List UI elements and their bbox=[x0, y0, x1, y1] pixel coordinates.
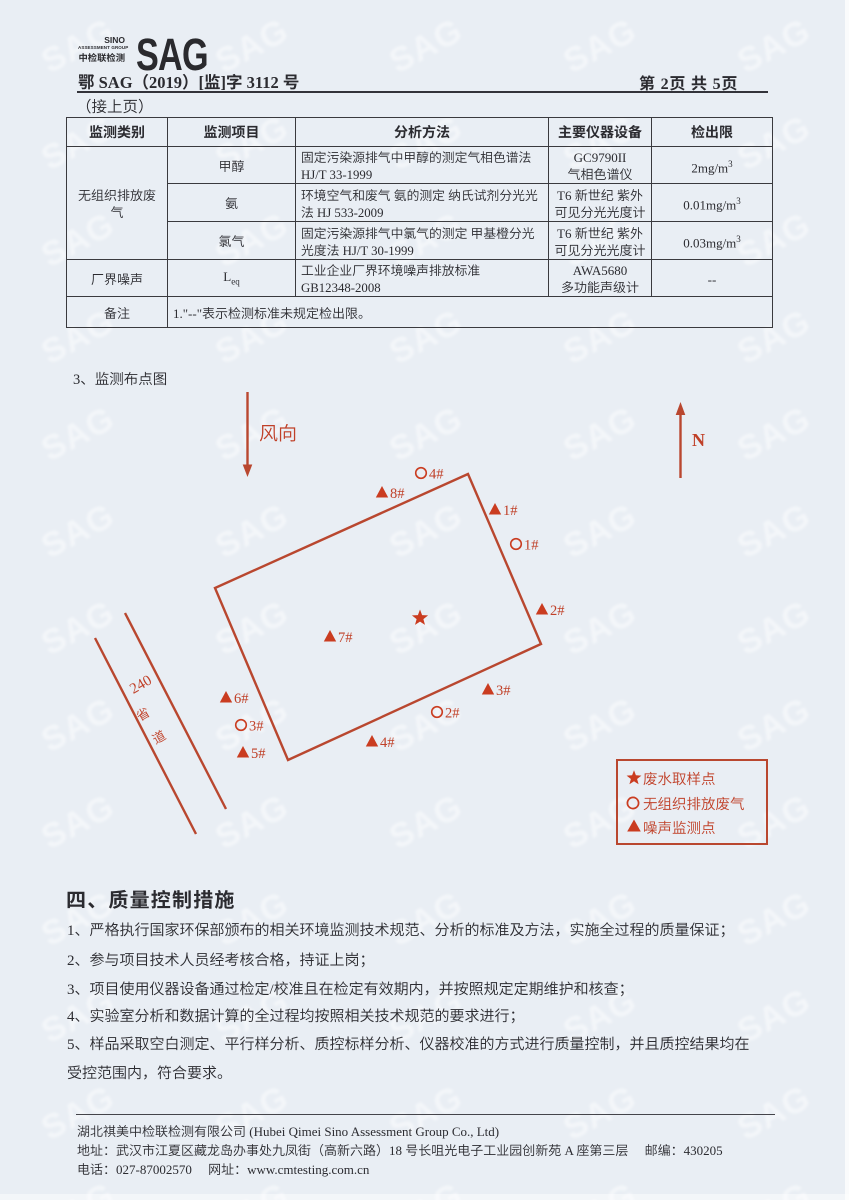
svg-text:3#: 3# bbox=[249, 719, 264, 735]
svg-text:1#: 1# bbox=[524, 538, 539, 554]
svg-text:3#: 3# bbox=[496, 683, 511, 699]
svg-text:6#: 6# bbox=[234, 691, 249, 707]
svg-text:8#: 8# bbox=[390, 486, 405, 502]
svg-text:无组织排放废气: 无组织排放废气 bbox=[643, 793, 745, 814]
svg-text:4#: 4# bbox=[429, 467, 444, 483]
svg-text:5#: 5# bbox=[251, 746, 266, 762]
svg-text:2#: 2# bbox=[445, 706, 460, 722]
svg-text:7#: 7# bbox=[338, 630, 353, 646]
svg-text:噪声监测点: 噪声监测点 bbox=[643, 817, 716, 838]
svg-text:1#: 1# bbox=[503, 503, 518, 519]
svg-text:2#: 2# bbox=[550, 603, 565, 619]
svg-text:4#: 4# bbox=[380, 735, 395, 751]
svg-text:废水取样点: 废水取样点 bbox=[643, 768, 716, 789]
